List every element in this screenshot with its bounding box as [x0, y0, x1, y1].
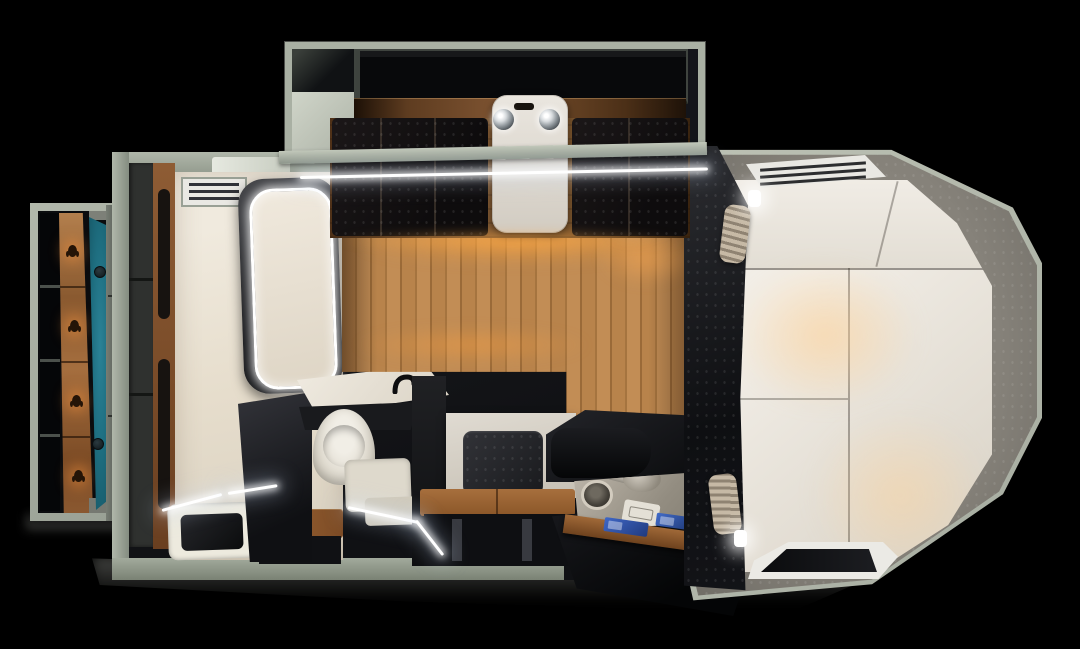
panel-joint — [60, 436, 89, 438]
coat-hook-icon — [72, 395, 81, 407]
camper-floorplan — [0, 0, 1080, 649]
coat-hook-icon — [74, 470, 83, 482]
shower-drain — [180, 513, 243, 551]
bench-seam — [496, 489, 498, 516]
entry-cubbies — [40, 213, 60, 511]
sink-icon — [581, 480, 613, 510]
bathroom-roof-vent-icon — [181, 177, 247, 207]
spotlight-icon — [539, 109, 560, 130]
reading-light-icon — [734, 530, 747, 547]
bathroom-partition — [238, 392, 312, 562]
cubby-divider — [40, 434, 60, 437]
reading-light-icon — [748, 190, 761, 207]
vent-slat — [189, 183, 239, 186]
bench-leg — [522, 519, 532, 561]
locker-divider — [356, 51, 360, 100]
module-inset — [628, 506, 654, 521]
bench-base — [424, 514, 574, 566]
panel-joint — [60, 286, 89, 288]
shelf-edge — [129, 393, 153, 396]
cubby-divider — [40, 285, 60, 288]
door-inset — [158, 189, 170, 319]
vent-slat — [189, 190, 239, 193]
dinette-seat-right — [572, 118, 688, 236]
cubby-divider — [40, 359, 60, 362]
screen-glyph — [608, 521, 623, 531]
appliance-panel — [463, 431, 543, 495]
storage-bench — [420, 489, 575, 516]
bathroom-door-led-mirror — [249, 187, 339, 391]
door-inset — [158, 359, 170, 509]
shelf-edge — [129, 278, 153, 281]
coat-hook-icon — [68, 245, 77, 257]
knob-icon — [92, 438, 104, 450]
coat-hook-icon — [70, 320, 79, 332]
left-wall — [112, 152, 129, 580]
spotlight-icon — [493, 109, 514, 130]
knob-icon — [94, 266, 106, 278]
slideout-corner-void — [292, 49, 354, 92]
panel-joint — [60, 361, 89, 363]
spotlight-bracket — [514, 103, 534, 110]
bench-leg — [452, 519, 462, 561]
galley-bolster — [551, 428, 651, 478]
vent-slat — [189, 197, 239, 200]
wardrobe-door — [153, 163, 175, 549]
screen-glyph — [660, 516, 675, 526]
shelf-column — [129, 163, 153, 547]
bed-light-glow — [730, 260, 920, 410]
